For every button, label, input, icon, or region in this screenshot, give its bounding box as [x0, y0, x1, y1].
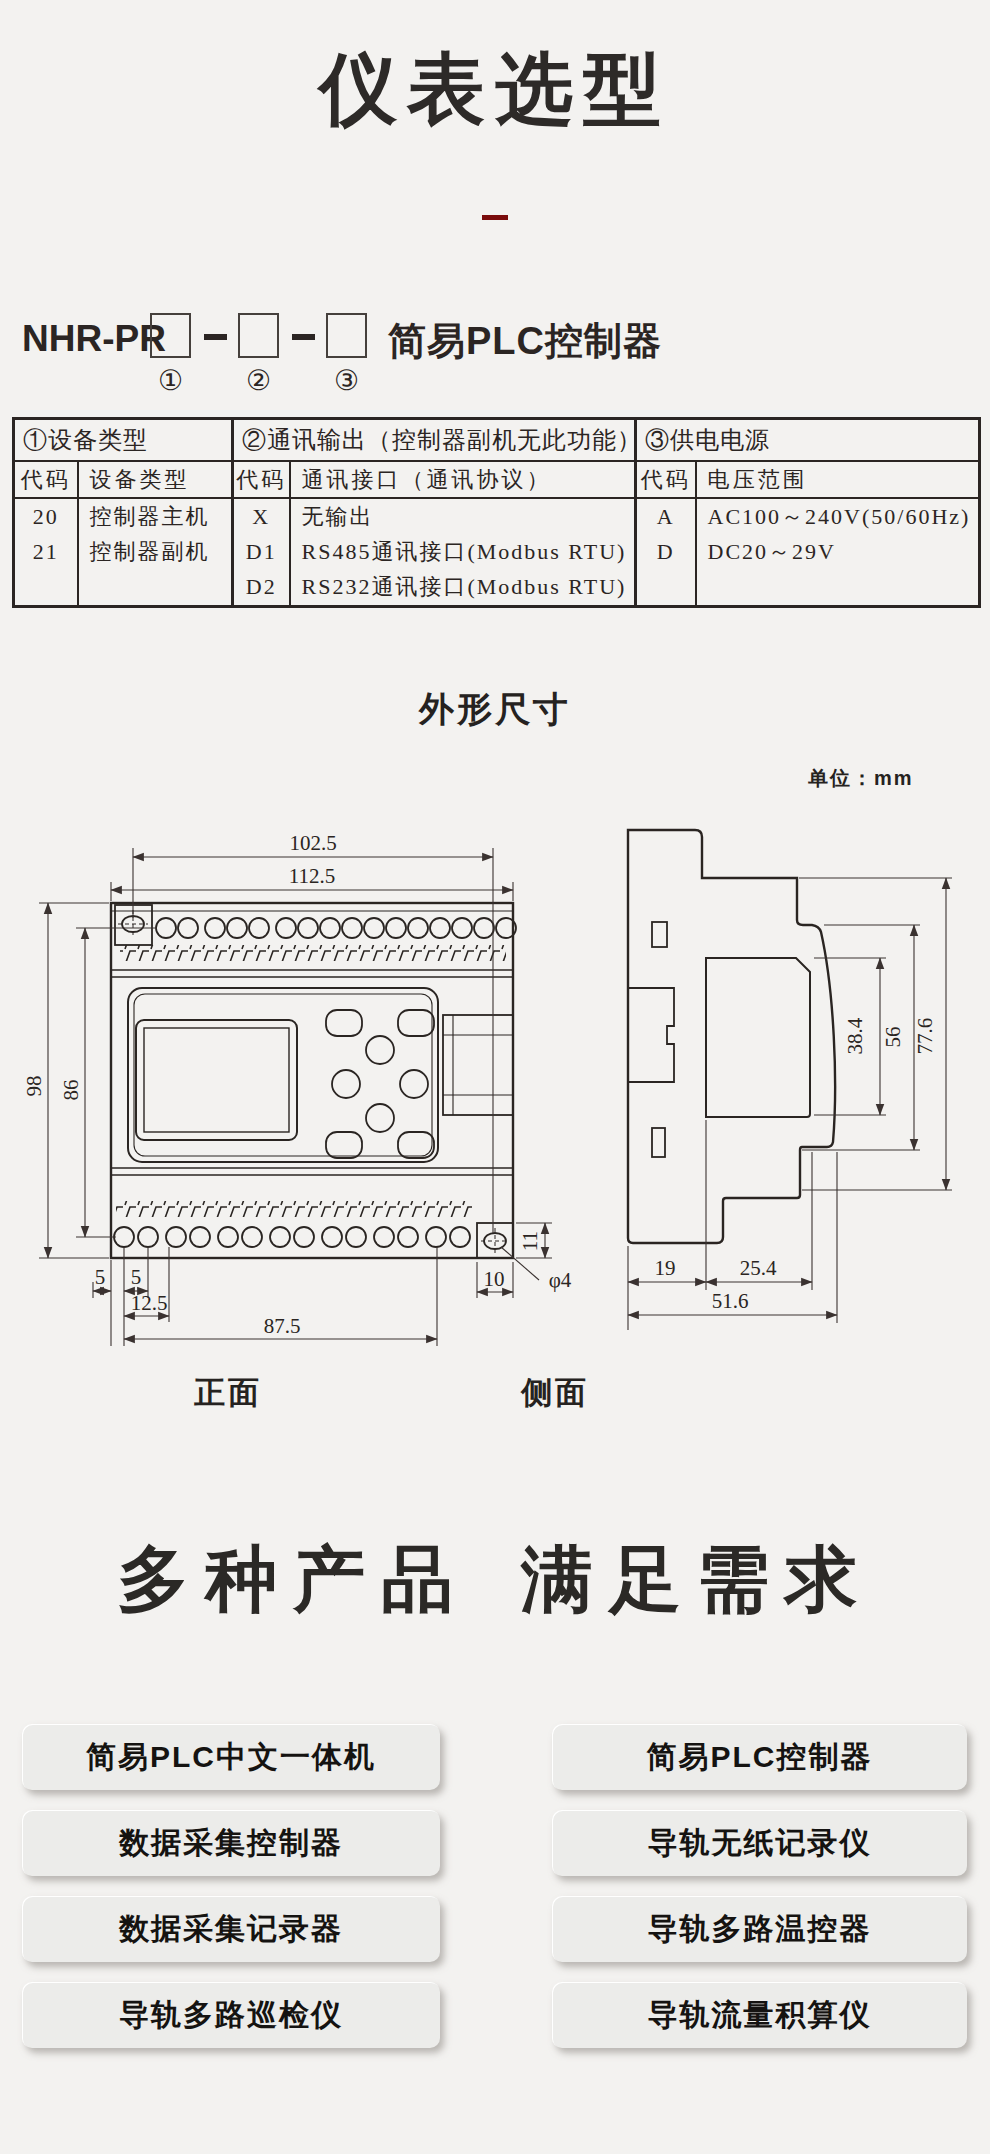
- col-header-code-2: 代码: [233, 461, 290, 498]
- table-cell: DC20～29V: [696, 534, 980, 570]
- product-page: 仪表选型 NHR-PR ① ② ③ 简易PLC控制器 ①设备类型 ②通讯输出（控…: [0, 0, 990, 2154]
- model-prefix: NHR-PR: [22, 318, 166, 360]
- products-heading: 多种产品满足需求: [0, 1532, 990, 1628]
- col-header-interface: 通讯接口（通讯协议）: [290, 461, 636, 498]
- dim-side-51-6: 51.6: [712, 1289, 749, 1313]
- model-code-box-3: [326, 313, 367, 358]
- front-view-drawing: 102.5 112.5 98 86 5 5 12.5 87.5 10 11 φ4: [20, 790, 590, 1350]
- table-cell: D1: [233, 534, 290, 570]
- table-cell: X: [233, 498, 290, 534]
- products-heading-right: 满足需求: [521, 1539, 873, 1619]
- table-cell: 20: [14, 498, 78, 534]
- table-cell: 控制器副机: [78, 534, 233, 570]
- col-header-code-3: 代码: [636, 461, 696, 498]
- model-dash-2: [292, 334, 315, 340]
- model-suffix: 简易PLC控制器: [388, 316, 662, 367]
- col-header-device-type: 设备类型: [78, 461, 233, 498]
- table-cell: RS485通讯接口(Modbus RTU): [290, 534, 636, 570]
- page-title: 仪表选型: [0, 38, 990, 143]
- table-cell: A: [636, 498, 696, 534]
- table-cell: 21: [14, 534, 78, 570]
- model-dash-1: [204, 334, 227, 340]
- dim-front-98: 98: [22, 1076, 46, 1097]
- red-divider: [482, 215, 508, 220]
- dim-side-19: 19: [655, 1256, 676, 1280]
- dim-front-112-5: 112.5: [289, 864, 335, 888]
- unit-label: 单位：mm: [808, 765, 914, 792]
- marker-3: ③: [326, 364, 367, 397]
- table-cell: [14, 570, 78, 606]
- table-cell: AC100～240V(50/60Hz): [696, 498, 980, 534]
- dim-front-11: 11: [518, 1231, 542, 1251]
- table-cell: 控制器主机: [78, 498, 233, 534]
- product-button-rail-flow-totalizer[interactable]: 导轨流量积算仪: [552, 1982, 967, 2048]
- dim-front-10: 10: [484, 1267, 505, 1291]
- model-code-box-1: [150, 313, 191, 358]
- dim-side-56: 56: [881, 1027, 905, 1048]
- col-header-voltage: 电压范围: [696, 461, 980, 498]
- dim-front-102-5: 102.5: [289, 831, 336, 855]
- table-cell: 无输出: [290, 498, 636, 534]
- dim-front-87-5: 87.5: [264, 1314, 301, 1338]
- product-button-rail-multi-temp-controller[interactable]: 导轨多路温控器: [552, 1896, 967, 1962]
- dim-front-86: 86: [59, 1080, 83, 1101]
- table-cell: [696, 570, 980, 606]
- col-header-code-1: 代码: [14, 461, 78, 498]
- marker-1: ①: [150, 364, 191, 397]
- table-header-device-type: ①设备类型: [14, 419, 233, 462]
- product-button-plc-controller[interactable]: 简易PLC控制器: [552, 1724, 967, 1790]
- dim-front-5b: 5: [131, 1265, 142, 1289]
- model-code-row: NHR-PR ① ② ③ 简易PLC控制器: [0, 300, 990, 410]
- table-header-power: ③供电电源: [636, 419, 980, 462]
- front-view-label: 正面: [163, 1372, 293, 1414]
- dim-front-hole: φ4: [549, 1268, 572, 1292]
- dimensions-section-title: 外形尺寸: [0, 686, 990, 733]
- product-button-data-acquisition-controller[interactable]: 数据采集控制器: [22, 1810, 440, 1876]
- table-cell: D: [636, 534, 696, 570]
- dim-front-5a: 5: [95, 1265, 106, 1289]
- table-cell: D2: [233, 570, 290, 606]
- table-header-comm-output: ②通讯输出（控制器副机无此功能）: [233, 419, 636, 462]
- side-view-label: 侧面: [490, 1372, 620, 1414]
- product-button-rail-paperless-recorder[interactable]: 导轨无纸记录仪: [552, 1810, 967, 1876]
- dim-front-12-5: 12.5: [131, 1291, 168, 1315]
- product-button-rail-multi-channel-scanner[interactable]: 导轨多路巡检仪: [22, 1982, 440, 2048]
- model-code-box-2: [238, 313, 279, 358]
- side-view-drawing: 38.4 56 77.6 19 25.4 51.6: [600, 790, 990, 1350]
- table-cell: [78, 570, 233, 606]
- table-cell: [636, 570, 696, 606]
- product-button-plc-chinese-all-in-one[interactable]: 简易PLC中文一体机: [22, 1724, 440, 1790]
- table-cell: RS232通讯接口(Modbus RTU): [290, 570, 636, 606]
- spec-table: ①设备类型 ②通讯输出（控制器副机无此功能） ③供电电源 代码 设备类型 代码 …: [12, 417, 981, 608]
- products-heading-left: 多种产品: [117, 1539, 469, 1619]
- dim-side-25-4: 25.4: [740, 1256, 777, 1280]
- dim-side-38-4: 38.4: [843, 1017, 867, 1054]
- marker-2: ②: [238, 364, 279, 397]
- dim-side-77-6: 77.6: [913, 1018, 937, 1055]
- product-button-data-acquisition-recorder[interactable]: 数据采集记录器: [22, 1896, 440, 1962]
